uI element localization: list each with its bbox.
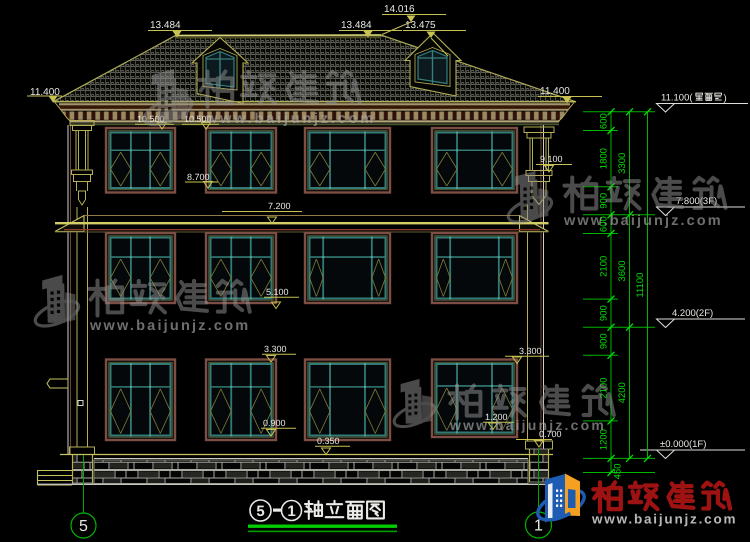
svg-text:www.baijunjz.com: www.baijunjz.com [89,318,250,334]
svg-text:8.700: 8.700 [187,172,210,182]
svg-text:5.100: 5.100 [266,287,289,297]
svg-text:4200: 4200 [617,382,628,403]
svg-text:450: 450 [613,464,624,480]
svg-text:3.300: 3.300 [519,346,542,356]
svg-text:11100: 11100 [635,273,646,298]
svg-text:11.400: 11.400 [540,86,570,97]
svg-text:2100: 2100 [599,256,610,277]
svg-text:11.100(: 11.100( [661,93,693,104]
svg-text:www.baijunjz.com: www.baijunjz.com [449,417,606,433]
svg-text:0.350: 0.350 [317,436,340,446]
svg-text:3600: 3600 [617,260,628,281]
svg-text:9.100: 9.100 [540,154,563,164]
svg-text:14.016: 14.016 [384,4,415,15]
svg-text:600: 600 [599,113,610,129]
svg-text:7.200: 7.200 [268,201,291,211]
svg-text:5: 5 [256,503,264,520]
svg-text:3300: 3300 [617,153,628,174]
svg-text:5: 5 [79,518,88,535]
svg-text:1: 1 [287,503,295,520]
svg-text:900: 900 [599,305,610,321]
svg-text:www.baijunjz.com: www.baijunjz.com [563,213,723,229]
svg-text:www.baijunjz.com: www.baijunjz.com [205,111,376,127]
svg-text:1800: 1800 [599,148,610,169]
svg-text:900: 900 [599,333,610,349]
svg-text:13.484: 13.484 [341,20,372,31]
svg-text:±0.000(1F): ±0.000(1F) [660,439,706,450]
svg-text:13.484: 13.484 [150,20,181,31]
svg-text:3.300: 3.300 [264,344,287,354]
svg-text:13.475: 13.475 [405,20,436,31]
svg-text:0.900: 0.900 [263,418,286,428]
svg-text:4.200(2F): 4.200(2F) [672,308,713,319]
svg-text:): ) [724,93,727,104]
svg-text:www.baijunjz.com: www.baijunjz.com [591,512,737,527]
